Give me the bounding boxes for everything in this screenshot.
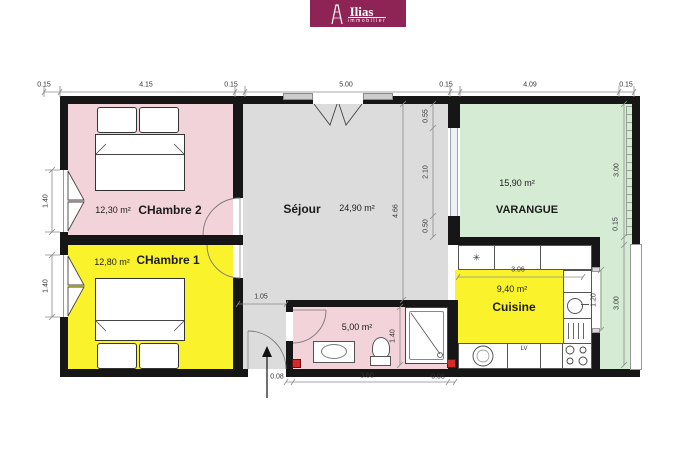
hallway-floor (243, 235, 286, 369)
sejour-name: Séjour (283, 202, 320, 216)
chambre1-name: CHambre 1 (136, 253, 199, 267)
kitchen-cabinet (540, 245, 592, 270)
dim-label: 0.15 (619, 82, 633, 89)
kitchen-washer-cabinet (458, 343, 508, 369)
sejour-varangue-window (450, 128, 458, 216)
dim-label: 0.08 (270, 374, 284, 381)
chambre2-window-opening (60, 170, 68, 232)
kitchen-cabinet: ✳ (458, 245, 495, 270)
agency-logo: Ilias immobilier (310, 0, 406, 27)
wall-bedrooms-divider (60, 235, 243, 245)
varangue-area: 15,90 m² (499, 178, 535, 188)
shower-tray (409, 311, 444, 360)
varangue-railing (626, 106, 632, 236)
wall-bottom (60, 369, 640, 377)
varangue-opening-jamb-top (592, 267, 600, 272)
tower-icon (330, 3, 344, 25)
dim-label: 2.10 (423, 165, 430, 179)
cuisine-area: 9,40 m² (497, 284, 528, 294)
sejour-area: 24,90 m² (339, 203, 375, 213)
dim-label: 0.15 (439, 82, 453, 89)
logo-subtitle: immobilier (348, 18, 387, 25)
chambre1-window-opening (60, 255, 68, 317)
chambre1-pillow (97, 343, 137, 369)
chambre2-bed (95, 134, 185, 191)
dim-label: 0.50 (423, 219, 430, 233)
wall-post-right (447, 359, 456, 368)
chambre2-name: CHambre 2 (138, 203, 201, 217)
chambre1-bed-fold (96, 320, 184, 321)
toilet-tank (370, 356, 391, 366)
sejour-door-sill-left (283, 93, 313, 100)
wall-post-left (292, 359, 301, 368)
cuisine-name: Cuisine (492, 300, 535, 314)
dim-label: 3.00 (614, 296, 621, 310)
dim-label: 4.15 (139, 82, 153, 89)
wall-cuisine-strip-lower (592, 330, 600, 369)
light-symbol: ✳ (473, 252, 481, 263)
kitchen-drawer-unit (563, 318, 592, 344)
dim-label: 0.15 (613, 217, 620, 231)
logo-title: Ilias (348, 6, 387, 18)
wall-bedrooms-hall-upper (233, 104, 243, 198)
dim-label: 1.40 (390, 329, 397, 343)
varangue-opening-jamb-bottom (592, 328, 600, 333)
dishwasher-label: LV (521, 346, 528, 352)
floor-plan: Ilias immobilier (0, 0, 700, 455)
dim-label: 0.55 (423, 109, 430, 123)
wall-right-upper (632, 96, 640, 244)
sejour-door-sill-right (363, 93, 393, 100)
dim-label: 1.05 (254, 294, 268, 301)
chambre2-pillow (97, 107, 137, 133)
kitchen-cabinet (540, 343, 563, 369)
chambre1-pillow (139, 343, 179, 369)
wall-bath-left-a (286, 300, 293, 312)
dim-label: 0.15 (37, 82, 51, 89)
bath-area: 5,00 m² (342, 322, 373, 332)
chambre2-area: 12,30 m² (95, 205, 131, 215)
chambre1-area: 12,80 m² (94, 257, 130, 267)
varangue-lower-wall (630, 244, 642, 370)
dim-label: 4.66 (393, 204, 400, 218)
dim-label: 3.60 (360, 373, 374, 380)
room-varangue-floor (460, 104, 600, 237)
varangue-name: VARANGUE (496, 204, 558, 216)
dim-label: 0.08 (431, 374, 445, 381)
bath-basin (321, 344, 347, 359)
dim-label: 1.40 (43, 194, 50, 208)
dim-label: 1.40 (43, 279, 50, 293)
kitchen-stove (562, 343, 592, 369)
wall-bedrooms-hall-lower (233, 278, 243, 369)
kitchen-dishwasher: LV (507, 343, 541, 369)
wall-varangue-cuisine (448, 237, 600, 245)
dim-label: 4.09 (523, 82, 537, 89)
dim-label: 3.06 (511, 267, 525, 274)
chambre2-bed-fold (96, 154, 184, 155)
dim-label: 5.00 (339, 82, 353, 89)
chambre2-pillow (139, 107, 179, 133)
kitchen-cabinet (563, 270, 592, 293)
dim-label: 0.15 (224, 82, 238, 89)
wall-bath-top (286, 300, 458, 307)
wall-sejour-varangue-upper (448, 104, 460, 128)
sejour-door-opening (313, 96, 363, 104)
chambre1-bed (95, 278, 185, 341)
dim-label: 3.00 (614, 163, 621, 177)
dim-label: 1.20 (591, 293, 598, 307)
kitchen-sink-unit (563, 292, 592, 319)
